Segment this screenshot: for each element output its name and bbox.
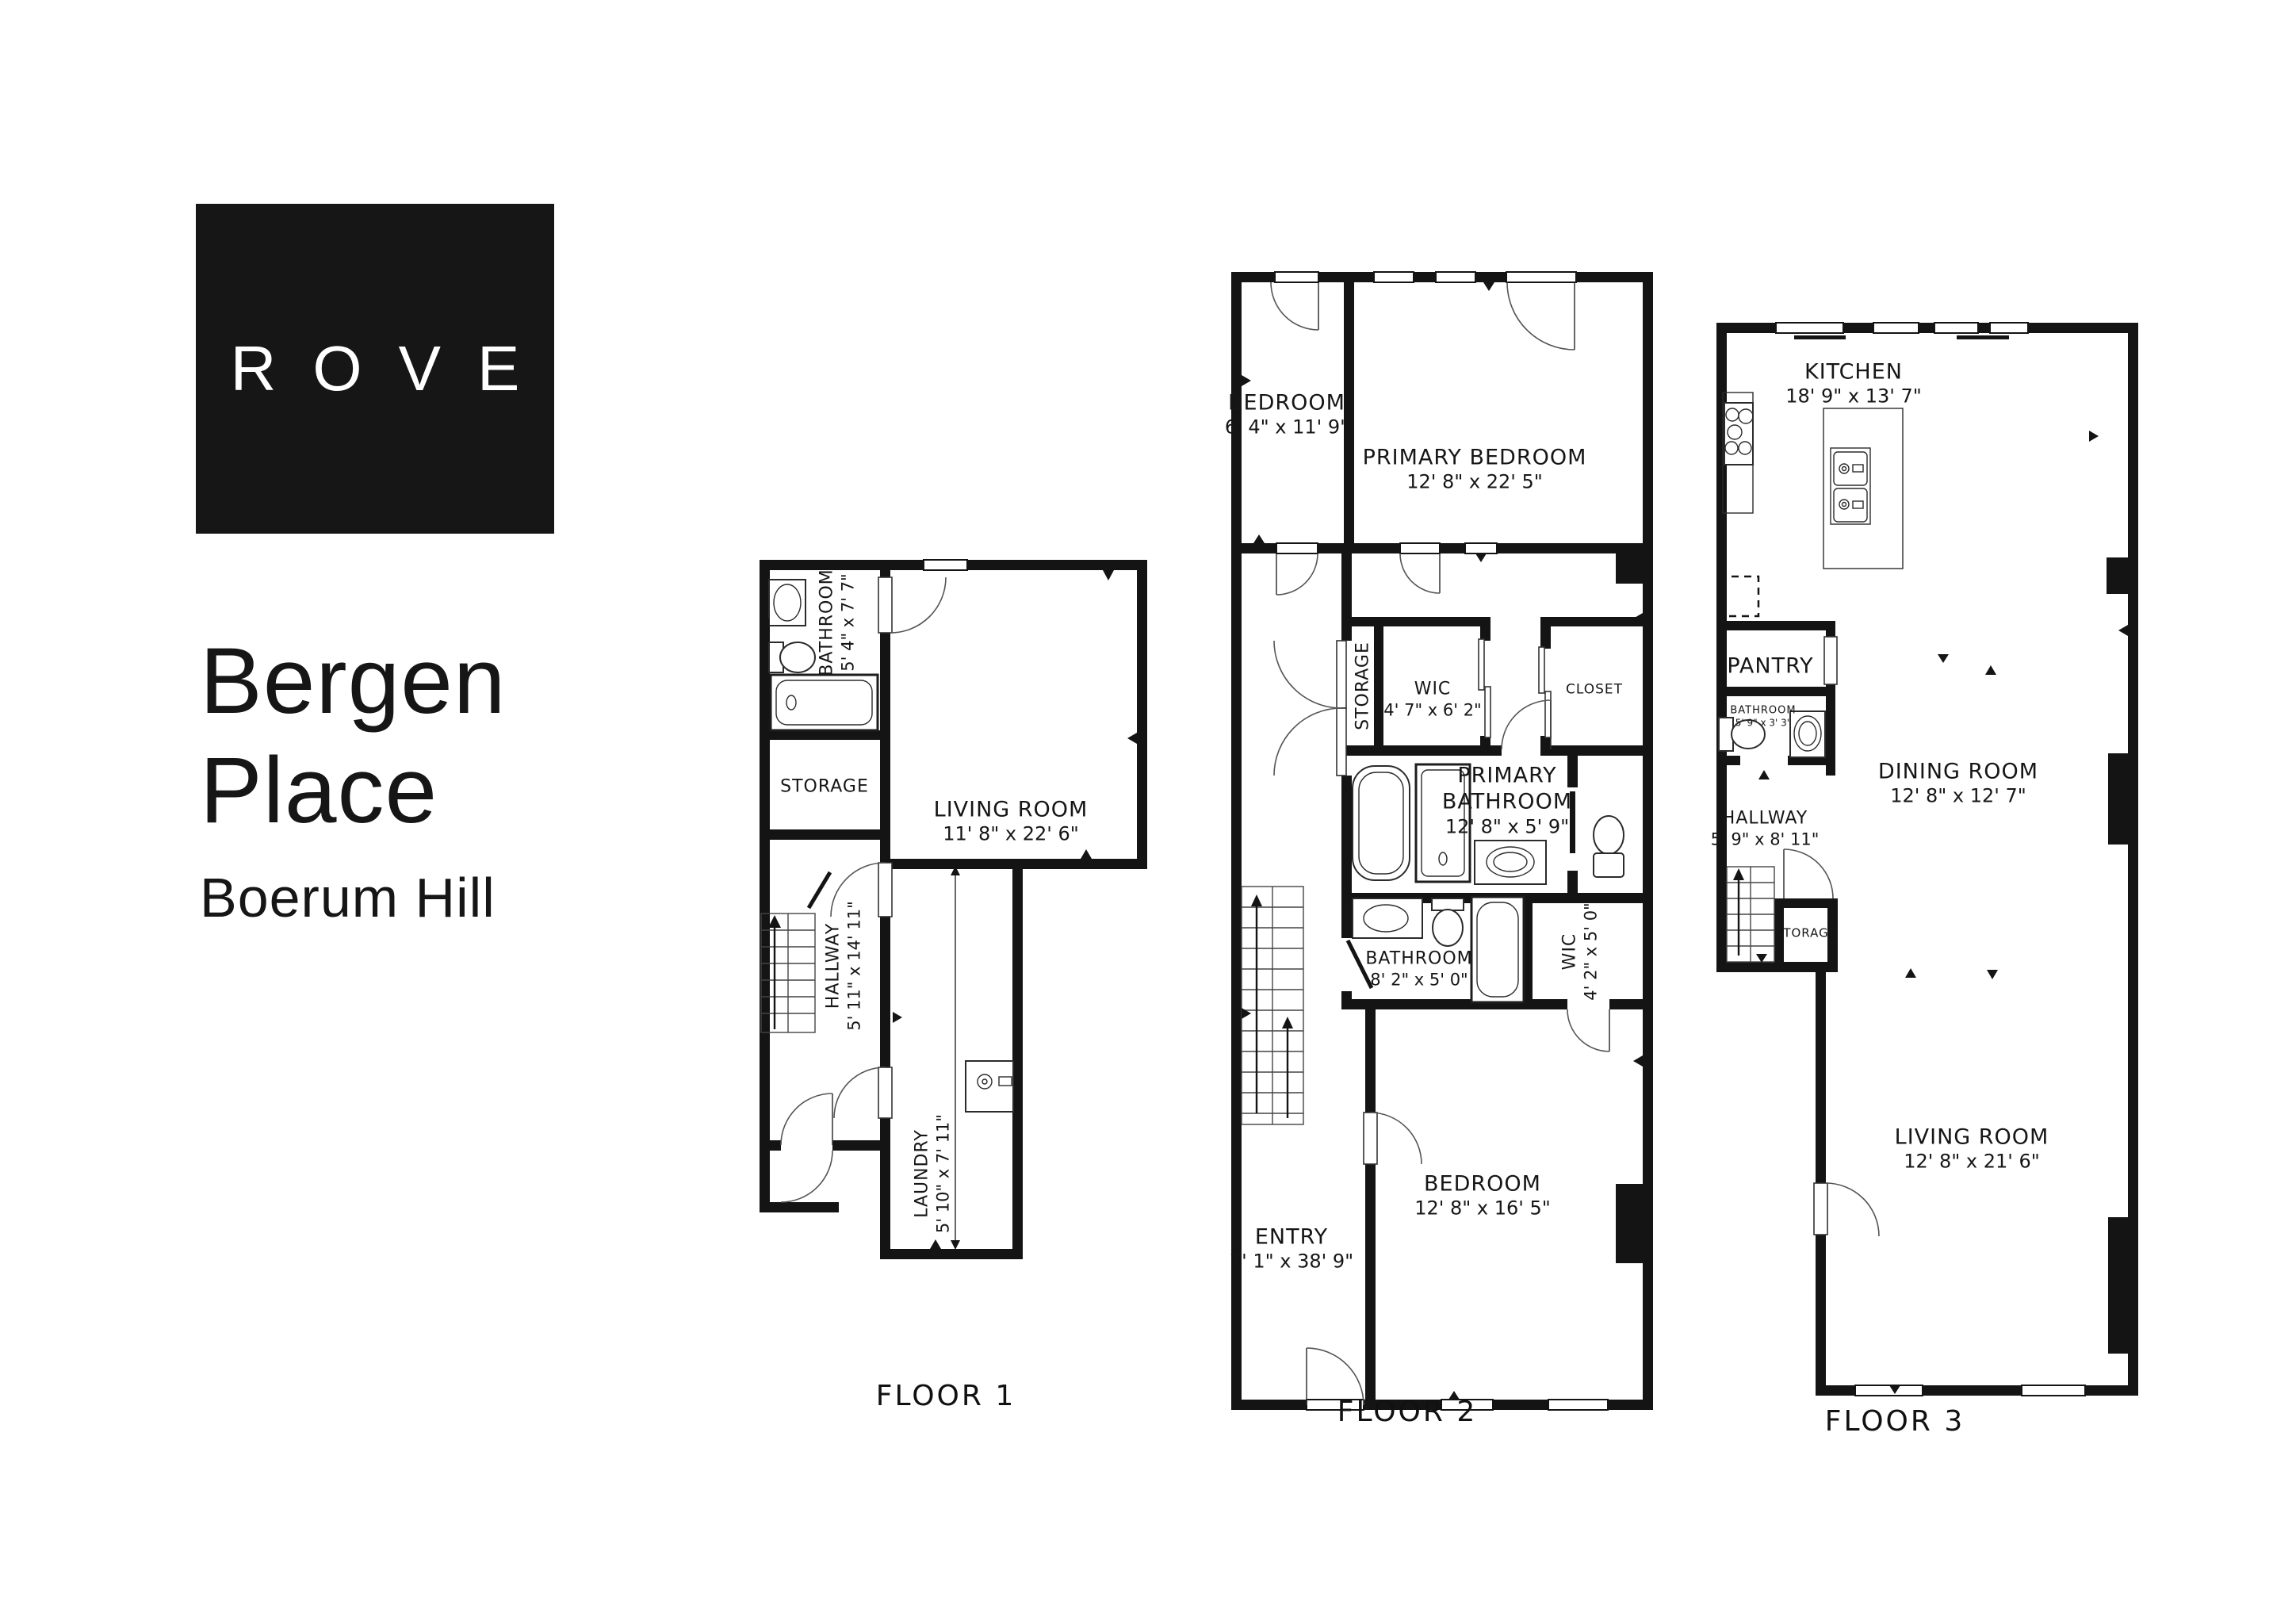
floor-plan-sheet: ROVE Bergen Place Boerum Hill [0, 0, 2296, 1624]
toilet-icon [1594, 816, 1624, 877]
chimney [1616, 1184, 1643, 1263]
french-door-arc [1274, 641, 1341, 708]
window [924, 560, 967, 570]
door-arc [1784, 849, 1833, 898]
room-label-entry: ENTRY 7' 1" x 38' 9" [1230, 1224, 1353, 1274]
property-title: Bergen Place Boerum Hill [200, 626, 507, 929]
sink-icon [1475, 841, 1546, 884]
room-label-bedroom-f2: BEDROOM 6' 4" x 11' 9" [1225, 389, 1349, 439]
sliding-door [1539, 647, 1544, 693]
door-arc [1271, 282, 1318, 330]
room-label-kitchen: KITCHEN 18' 9" x 13' 7" [1785, 358, 1922, 408]
chimney [2108, 753, 2128, 845]
stairs-up-arrow [768, 915, 781, 928]
bathtub-icon [771, 675, 878, 730]
kitchen-island [1823, 408, 1903, 569]
room-label-closet: CLOSET [1566, 681, 1623, 698]
chimney [2107, 557, 2128, 594]
stove-icon [1723, 393, 1753, 513]
wall-ticks [1758, 431, 2128, 1394]
room-label-storage-f1: STORAGE [780, 776, 869, 797]
door-arc [834, 1067, 885, 1118]
bathroom-sink-icon [769, 580, 806, 626]
title-subtitle: Boerum Hill [200, 866, 507, 929]
toilet-icon [1432, 898, 1464, 946]
window [2022, 1385, 2085, 1396]
window [1990, 323, 2028, 333]
room-label-primary-bathroom: PRIMARY BATHROOM 12' 8" x 5' 9" [1432, 763, 1582, 840]
room-label-bedroom-2: BEDROOM 12' 8" x 16' 5" [1414, 1170, 1551, 1220]
room-label-hallway-f1: HALLWAY 5' 11" x 14' 11" [822, 901, 864, 1031]
bathtub-icon [1471, 897, 1524, 1002]
door-leaf [1824, 637, 1837, 684]
room-label-primary-bedroom: PRIMARY BEDROOM 12' 8" x 22' 5" [1363, 444, 1587, 494]
door-leaf [1814, 1183, 1827, 1235]
room-label-pantry: PANTRY [1727, 653, 1813, 679]
french-door-leaf [1337, 641, 1346, 708]
floor-1-plan: BATHROOM 5' 4" x 7' 7" STORAGE LIVING RO… [753, 553, 1154, 1259]
title-line-1: Bergen [200, 626, 507, 736]
door-leaf [1364, 1113, 1377, 1164]
window [1436, 272, 1475, 282]
door-leaf [878, 1067, 892, 1118]
room-label-laundry-f1: LAUNDRY 5' 10" x 7' 11" [911, 1114, 953, 1233]
floor-3-drawing [1712, 321, 2145, 1411]
door-arc [890, 577, 946, 633]
door-arc [1276, 553, 1318, 595]
room-label-wic-2: WIC 4' 2" x 5' 0" [1559, 902, 1601, 1000]
room-label-wic-1: WIC 4' 7" x 6' 2" [1383, 678, 1481, 720]
sink-icon [1353, 898, 1422, 938]
french-door-arc [1274, 708, 1341, 776]
floor-2-caption: FLOOR 2 [1337, 1396, 1478, 1428]
rove-logo: ROVE [196, 204, 554, 534]
stairs-icon [1242, 887, 1303, 1124]
chimney [2108, 1217, 2128, 1354]
window [1374, 272, 1414, 282]
window [1873, 323, 1919, 333]
room-label-hallway-f3: HALLWAY 5' 9" x 8' 11" [1711, 807, 1820, 849]
door-arc [1826, 1183, 1879, 1236]
room-label-bathroom-f1: BATHROOM 5' 4" x 7' 7" [816, 569, 858, 676]
toilet-icon [769, 642, 815, 672]
stairs-up-arrow [1733, 868, 1744, 880]
room-label-dining-room: DINING ROOM 12' 8" x 12' 7" [1878, 758, 2038, 808]
room-label-bathroom-f3: BATHROOM 5' 9" x 3' 3" [1730, 705, 1796, 730]
door-arc [1567, 1009, 1609, 1051]
stairs-icon [1727, 867, 1774, 962]
french-door-leaf [1337, 708, 1346, 776]
floor-1-caption: FLOOR 1 [876, 1380, 1016, 1412]
door-arc [781, 1151, 832, 1202]
stairs-up-arrow [1282, 1017, 1293, 1028]
floor-3-plan: KITCHEN 18' 9" x 13' 7" PANTRY BATHROOM … [1712, 321, 2145, 1411]
title-line-2: Place [200, 736, 507, 845]
window [1465, 543, 1497, 553]
room-label-storage-f2: STORAGE [1352, 642, 1373, 730]
room-label-storage-f3: STORAGE [1775, 926, 1837, 941]
room-label-bathroom-f2: BATHROOM 8' 2" x 5' 0" [1365, 948, 1472, 990]
room-label-living-room-f1: LIVING ROOM 11' 8" x 22' 6" [934, 796, 1089, 846]
freestanding-tub-icon [1353, 766, 1410, 880]
floor-3-caption: FLOOR 3 [1825, 1405, 1965, 1438]
stairs-up-arrow [1251, 894, 1262, 906]
entry-door-arc [781, 1094, 832, 1145]
washer-icon [966, 1061, 1013, 1112]
rove-logo-text: ROVE [231, 332, 557, 405]
window [1934, 323, 1978, 333]
door-leaf [878, 863, 892, 917]
sliding-door [1545, 691, 1551, 737]
door-leaf [878, 577, 892, 633]
floor-2-plan: BEDROOM 6' 4" x 11' 9" PRIMARY BEDROOM 1… [1227, 268, 1659, 1414]
window [1776, 323, 1843, 333]
window [1548, 1400, 1608, 1410]
door-arc [1507, 282, 1575, 350]
chimney [1616, 553, 1643, 584]
floor-3-walls [1716, 323, 2138, 1396]
room-label-living-room-f3: LIVING ROOM 12' 8" x 21' 6" [1895, 1124, 2049, 1174]
door-arc [1400, 553, 1440, 593]
sliding-door [1485, 687, 1490, 737]
window [1855, 1385, 1923, 1396]
